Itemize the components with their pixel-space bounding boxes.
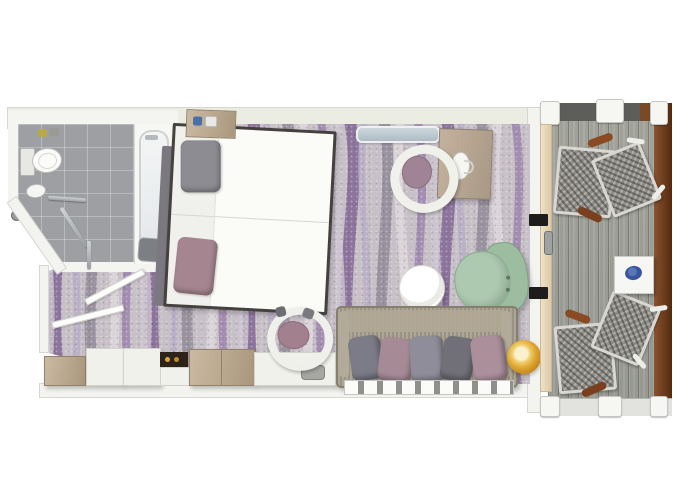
railing-post-4 [540,396,560,417]
railing-post-2 [596,99,624,123]
minibar-item2 [174,357,179,362]
minibar-drawer [160,367,190,386]
balcony-door-frame-top [529,214,548,226]
wardrobe-seam [221,350,222,385]
wardrobe-left [44,356,86,386]
railing-post-1 [540,101,560,125]
toilet-bowl-rim [37,152,58,170]
bathtub-faucet [145,135,158,140]
minibar [160,352,188,384]
floor-plan [0,0,680,491]
cabinet-white-1 [86,348,124,386]
cabinet-white-2 [123,348,161,386]
railing-post-5 [598,396,622,417]
curtain [540,124,552,392]
pillow-gray [181,140,221,192]
railing-post-6 [650,396,668,417]
floor-vent [344,380,514,395]
lounge-chair-frame [626,137,645,144]
balcony-door-handle [544,231,553,255]
decorative-bowl [624,265,643,282]
nightstand [186,109,237,139]
mirror-shelf [356,126,440,143]
railing-right [654,103,672,415]
railing-post-3 [650,101,668,125]
balcony-door-frame-bottom [529,287,548,299]
sofa-cushion-mauve-2 [469,334,508,384]
desk-kettle-handle [464,160,474,174]
wardrobe-right [189,349,255,386]
sofa-back [344,310,506,332]
gold-stool [507,340,541,374]
nightstand-item-blue [193,116,202,125]
pillow-mauve [173,236,219,296]
sofa [336,306,514,384]
vanity-chair [266,304,321,357]
corridor-left-wall [40,266,48,352]
shelf-item-yellow [38,129,47,137]
minibar-item [165,357,170,362]
grab-bar-vertical [87,241,91,269]
balcony-side-table [614,256,654,294]
bed [163,123,336,315]
round-table [399,265,445,311]
shelf-item-gray [49,128,59,136]
sofa-cushion-gray-2 [408,335,445,383]
nightstand-item-white [205,116,217,127]
